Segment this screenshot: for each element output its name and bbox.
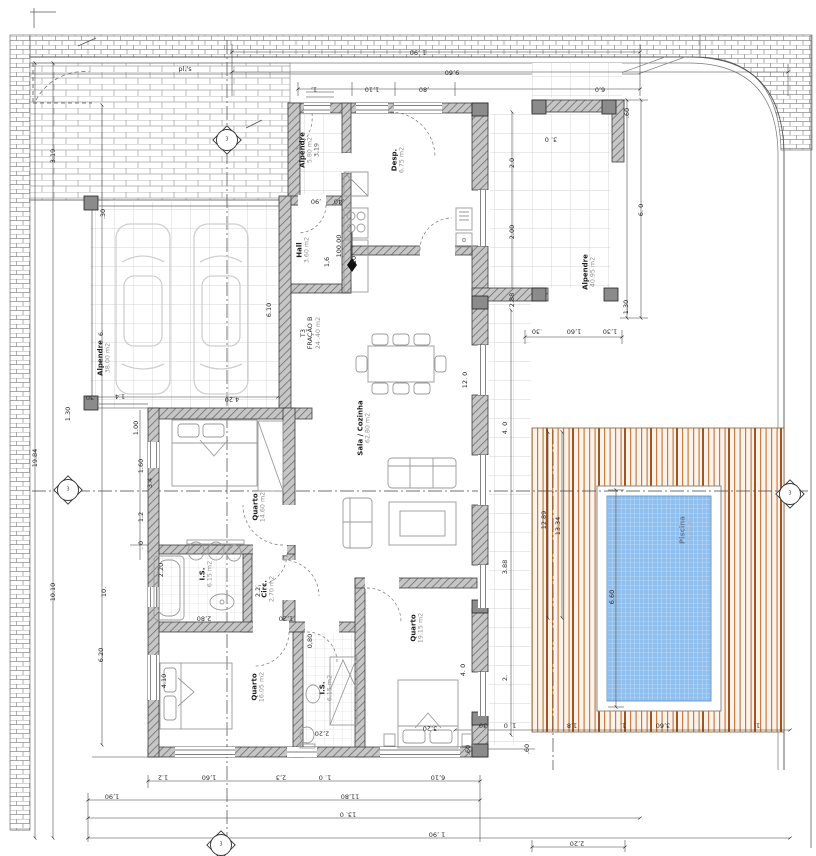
dim-label: 2.88 bbox=[509, 293, 516, 307]
section-marker-top: 3 bbox=[225, 138, 228, 143]
dim-label: .10 bbox=[351, 256, 358, 266]
dim-label: 1,20 bbox=[279, 615, 293, 622]
dim-label: 6,10 bbox=[431, 774, 445, 781]
dim-label: 13. 0 bbox=[340, 811, 357, 818]
dim-label: 10. bbox=[101, 587, 108, 597]
dim-label: 1,10 bbox=[365, 86, 379, 93]
dim-label: 6. bbox=[98, 330, 105, 336]
dim-label: 1.30 bbox=[65, 407, 72, 421]
dim-label: 6.60 bbox=[609, 590, 616, 604]
room-label-bedroom1: Quarto14.60 m2 bbox=[251, 492, 266, 522]
dim-label: 2,20 bbox=[315, 730, 329, 737]
dim-label: 13.34 bbox=[555, 517, 562, 536]
dim-label: .60 bbox=[524, 744, 531, 754]
dim-label: .30 bbox=[479, 722, 489, 729]
dim-label: 1. bbox=[620, 722, 626, 729]
dim-label: 0,80 bbox=[307, 634, 314, 648]
dining-table-icon bbox=[356, 334, 446, 394]
dim-label: 6.20 bbox=[98, 648, 105, 662]
room-label-pantry: Desp.6.75 m2 bbox=[390, 147, 405, 173]
dim-label: 1,6 bbox=[324, 257, 331, 267]
dim-label: 1. 0 bbox=[504, 722, 516, 729]
dim-label: ,40 bbox=[334, 198, 344, 205]
dim-label: 12.89 bbox=[541, 511, 548, 530]
dim-label: 1.2 bbox=[158, 774, 168, 781]
section-marker-bottom: 3 bbox=[219, 843, 222, 848]
dim-label: .60 bbox=[624, 108, 631, 118]
dim-label: 2,3 bbox=[276, 774, 286, 781]
dim-label: 2.2 bbox=[255, 587, 262, 597]
dim-label: 2,80 bbox=[197, 615, 211, 622]
dim-label: 2.20 bbox=[158, 563, 165, 577]
dim-label: 1. 0 bbox=[319, 774, 331, 781]
room-label-porch: Alpendre5.80 m23,19 bbox=[299, 132, 322, 168]
dim-label: 1,30 bbox=[603, 328, 617, 335]
dim-label: 3.19 bbox=[50, 149, 57, 163]
dim-label: 2. bbox=[502, 675, 509, 681]
armchair-icon bbox=[343, 498, 372, 548]
sofa-icon bbox=[388, 458, 456, 488]
dim-label: 1. bbox=[754, 722, 760, 729]
dim-label: 10.10 bbox=[50, 583, 57, 602]
dim-label: 3,20 bbox=[423, 725, 437, 732]
room-label-bath1: I.S.6.15 m2 bbox=[198, 561, 213, 587]
dim-label: 1.60 bbox=[138, 459, 145, 473]
dim-label: 4. 0 bbox=[460, 664, 467, 676]
floor-plan-canvas: Alpendre38.00 m2 Alpendre5.80 m23,19 Des… bbox=[0, 0, 816, 856]
bed-icon bbox=[384, 680, 473, 748]
dim-label: ,90 bbox=[311, 198, 321, 205]
dim-label: 19.84 bbox=[32, 449, 39, 468]
dim-label: .30 bbox=[532, 328, 542, 335]
dim-label: .60 bbox=[465, 745, 472, 755]
dim-label: 9,60 bbox=[445, 69, 459, 76]
bed-icon bbox=[160, 663, 232, 729]
dim-label: 1,60 bbox=[567, 328, 581, 335]
room-label-hall: Hall3.60 m2 bbox=[295, 237, 310, 263]
plan-drawing bbox=[0, 0, 816, 856]
fridge-icon bbox=[456, 208, 472, 247]
room-label-pool: Piscina23.80 m2 bbox=[678, 515, 693, 545]
paving-label: pl.'s bbox=[178, 66, 191, 73]
rug-icon bbox=[389, 502, 456, 545]
dim-label: 1.30 bbox=[623, 300, 630, 314]
room-label-bedroom3: Quarto19.15 m2 bbox=[409, 613, 424, 643]
dim-label: 3,60 bbox=[656, 722, 670, 729]
room-label-terrace: Alpendre40.95 m2 bbox=[581, 254, 596, 290]
dim-label: 2,20 bbox=[570, 840, 584, 847]
dim-label: 1,60 bbox=[202, 774, 216, 781]
dim-label: 1,90 bbox=[105, 793, 119, 800]
dim-label: 2.0 bbox=[509, 158, 516, 168]
dim-label: 1, bbox=[311, 86, 317, 93]
dim-label: 1.4 bbox=[115, 393, 125, 400]
dim-label: ,80 bbox=[419, 86, 429, 93]
dim-label: . 0 bbox=[138, 541, 145, 549]
dim-label: 1 ,90 bbox=[429, 831, 446, 838]
dim-label: 4.20 bbox=[225, 396, 239, 403]
section-marker-right: 3 bbox=[788, 492, 791, 497]
dim-label: 3.88 bbox=[502, 560, 509, 574]
room-label-bedroom2: Quarto16.05 m2 bbox=[250, 672, 265, 702]
unit-label: T3FRAÇÃO B24 .40 m2 bbox=[300, 317, 322, 350]
dim-label: 1.2 bbox=[138, 512, 145, 522]
section-marker-left: 3 bbox=[66, 488, 69, 493]
dim-label: 11,80 bbox=[341, 793, 360, 800]
dim-label: .30 bbox=[100, 209, 107, 219]
room-label-living-kitchen: Sala / Cozinha62.80 m2 bbox=[356, 400, 371, 455]
room-label-circulation: Circ.2.70 m2 bbox=[260, 576, 275, 602]
dim-label: 6.10 bbox=[266, 303, 273, 317]
dim-label: 4.10 bbox=[161, 674, 168, 688]
dim-label: .30 bbox=[86, 394, 96, 401]
dim-label: 1.00 bbox=[133, 421, 140, 435]
bed-icon bbox=[172, 420, 257, 486]
dim-label: 1.8 bbox=[567, 722, 577, 729]
dim-label: 3. 0 bbox=[545, 136, 557, 143]
dim-label: 2.00 bbox=[509, 225, 516, 239]
dim-label: 6. 0 bbox=[638, 204, 645, 216]
room-label-garage: Alpendre38.00 m2 bbox=[96, 340, 111, 376]
dim-label: 4. 0 bbox=[502, 422, 509, 434]
dim-label: 3.4 bbox=[147, 478, 154, 488]
elevation-label: 100.00 bbox=[336, 235, 343, 258]
dim-label: 1 ,90 bbox=[410, 49, 427, 56]
dim-label: 12. 0 bbox=[462, 372, 469, 389]
room-label-bath2: I.S.6.15 m2 bbox=[318, 675, 333, 701]
dim-label: 6,0 bbox=[595, 86, 605, 93]
